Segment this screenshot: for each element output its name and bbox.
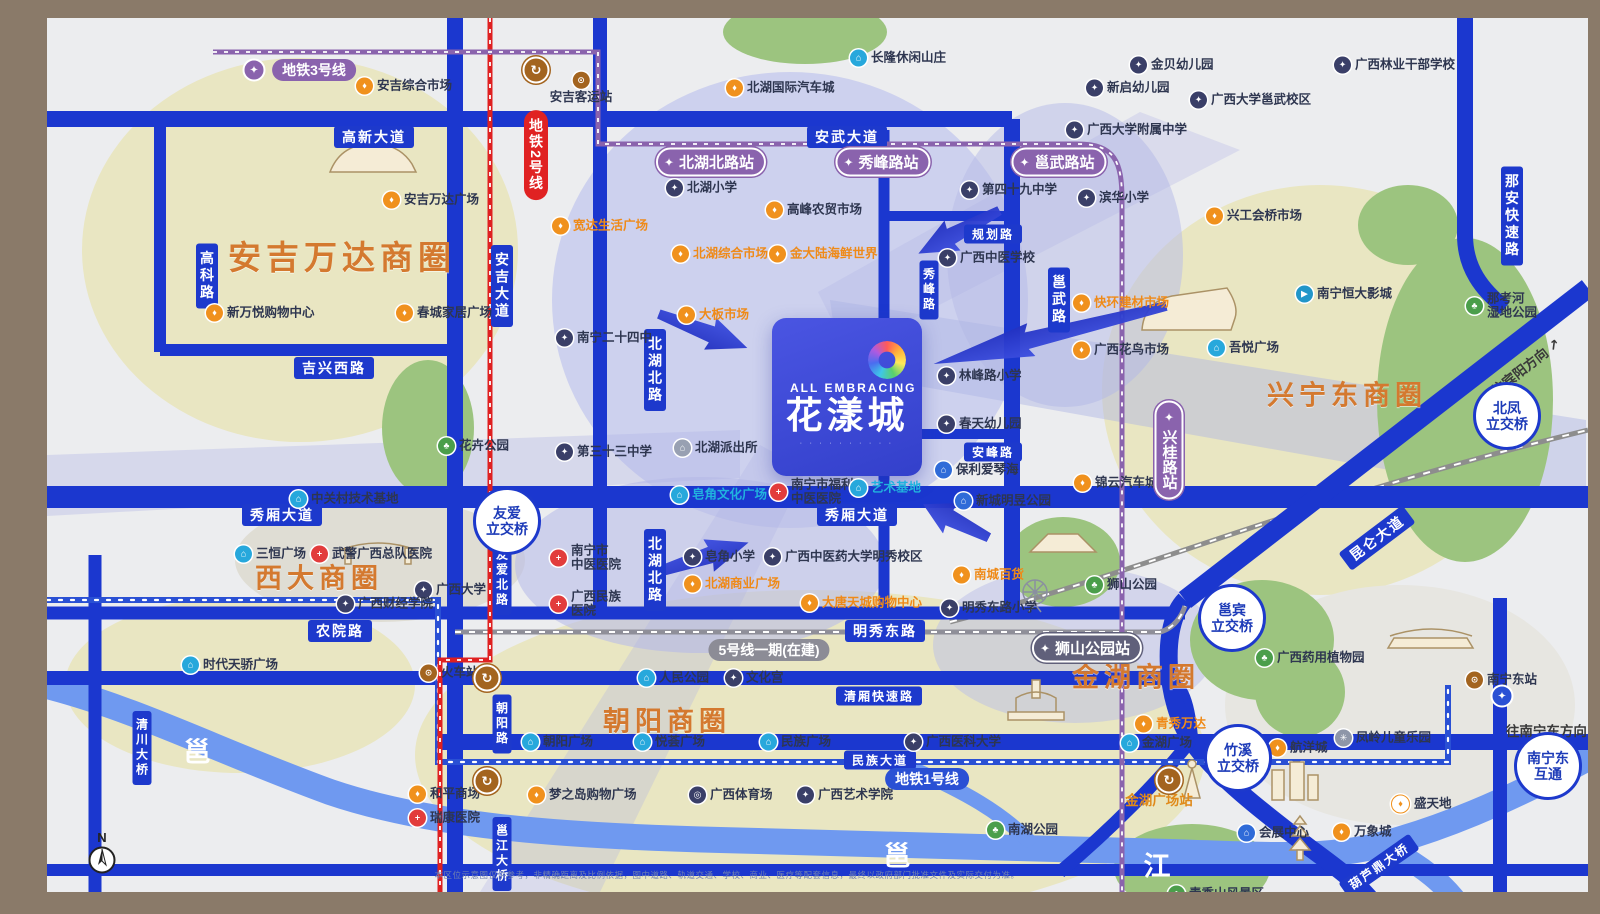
river-name-label: 邕 xyxy=(184,731,211,770)
market-icon: ♦ xyxy=(206,305,223,322)
train-station-icon: ⊙ xyxy=(572,72,589,89)
metro-logo-icon: ✦ xyxy=(843,155,853,169)
road-label: 安武大道 xyxy=(807,126,887,148)
road-label: 朝阳路 xyxy=(493,695,512,754)
hospital-cross-icon: + xyxy=(770,484,787,501)
interchange-name: 友爱立交桥 xyxy=(486,505,528,537)
business-circle-title: 安吉万达商圈 xyxy=(228,231,456,279)
interchange-name: 竹溪立交桥 xyxy=(1217,742,1259,774)
interchange-name: 北凤立交桥 xyxy=(1486,400,1528,432)
poi-museum: ⌂三恒广场 xyxy=(235,546,306,563)
school-icon: ✦ xyxy=(938,368,955,385)
poi-label: 皂角小学 xyxy=(705,550,755,564)
park-tree-icon: ♣ xyxy=(1168,886,1185,893)
poi-label: 广西财经学院 xyxy=(358,597,433,611)
poi-label: 安吉万达广场 xyxy=(404,193,479,207)
project-logo-card: ALL EMBRACING 花漾城 ∙ ∙ ∙ ∙ ∙ ∙ ∙ ∙ ∙ ∙ xyxy=(772,318,922,476)
poi-stadium: ◎广西体育场 xyxy=(689,787,773,804)
poi-label: 狮山公园 xyxy=(1107,578,1157,592)
museum-icon: ⌂ xyxy=(671,487,688,504)
poi-market: ♦快环建材市场 xyxy=(1073,295,1169,312)
school-icon: ✦ xyxy=(684,549,701,566)
poi-building: ⌂新城明昱公园 xyxy=(955,493,1051,510)
poi-label: 那考河湿地公园 xyxy=(1487,293,1537,320)
poi-label: 万象城 xyxy=(1354,825,1392,839)
poi-label: 民族广场 xyxy=(781,735,831,749)
poi-label: 广西中医药大学明秀校区 xyxy=(785,550,923,564)
poi-museum: ⌂民族广场 xyxy=(760,734,831,751)
poi-cinema: ▶南宁恒大影城 xyxy=(1296,286,1392,303)
poi-label: 春城家居广场 xyxy=(417,306,492,320)
metro-logo-icon: ✦ xyxy=(1019,155,1029,169)
poi-school: ✦广西大学附属中学 xyxy=(1066,122,1187,139)
poi-museum: ⌂长隆休闲山庄 xyxy=(850,50,946,67)
business-circle-title: 兴宁东商圈 xyxy=(1267,374,1427,413)
poi-hospital: +武警广西总队医院 xyxy=(311,546,432,563)
metro-line-pill: 5号线一期(在建) xyxy=(708,639,829,661)
market-icon: ♦ xyxy=(684,576,701,593)
metro-station-pill: ✦狮山公园站 xyxy=(1032,634,1142,663)
poi-school: ✦新启幼儿园 xyxy=(1086,80,1170,97)
school-icon: ✦ xyxy=(1334,57,1351,74)
poi-label: 安吉综合市场 xyxy=(377,79,452,93)
poi-market: ♦金大陆海鲜世界 xyxy=(769,246,878,263)
market-icon: ♦ xyxy=(552,218,569,235)
river-name-label: 邕 xyxy=(884,835,911,874)
poi-school: ✦广西医科大学 xyxy=(905,734,1001,751)
poi-school: ✦广西艺术学院 xyxy=(797,787,893,804)
road-label: 明秀东路 xyxy=(845,620,925,642)
market-icon: ♦ xyxy=(409,786,426,803)
road-label: 那安快速路 xyxy=(1501,167,1523,266)
road-label: 安吉大道 xyxy=(491,245,513,327)
poi-label: 金贝幼儿园 xyxy=(1151,58,1214,72)
museum-icon: ⌂ xyxy=(522,734,539,751)
poi-label: 春天幼儿园 xyxy=(959,417,1022,431)
poi-building: ⌂保利爱琴海 xyxy=(935,462,1019,479)
poi-market: ♦大唐天城购物中心 xyxy=(801,595,922,612)
station-name: 邕武路站 xyxy=(1035,152,1095,173)
poi-hospital: +南宁市福利中医医院 xyxy=(770,479,854,506)
poi-museum: ⌂朝阳广场 xyxy=(522,734,593,751)
poi-train: ⊙火车站 xyxy=(420,665,479,682)
poi-label: 朝阳广场 xyxy=(543,735,593,749)
poi-market: ♦航洋城 xyxy=(1269,740,1328,757)
hospital-cross-icon: + xyxy=(550,550,567,567)
poi-label: 北湖小学 xyxy=(687,181,737,195)
metro-transfer-icon: ↻ xyxy=(474,768,501,795)
park-tree-icon: ♣ xyxy=(1086,577,1103,594)
poi-market: ♦北湖综合市场 xyxy=(672,246,768,263)
poi-label: 艺术基地 xyxy=(871,481,921,495)
poi-hospital: +广西民族医院 xyxy=(550,591,621,618)
interchange-circle: 南宁东互通 xyxy=(1514,732,1582,800)
poi-label: 南宁二十四中 xyxy=(577,331,652,345)
poi-park: ♣青秀山风景区 xyxy=(1168,886,1264,893)
metro-station-pill: ✦邕武路站 xyxy=(1011,148,1106,177)
poi-school: ✦春天幼儿园 xyxy=(938,416,1022,433)
poi-school: ✦金贝幼儿园 xyxy=(1130,57,1214,74)
poi-school: ✦北湖小学 xyxy=(666,180,737,197)
school-icon: ✦ xyxy=(941,600,958,617)
market-icon: ♦ xyxy=(356,78,373,95)
station-name: 兴桂路站 xyxy=(1159,430,1180,490)
road-label: 北湖北路 xyxy=(644,529,666,611)
poi-label: 北湖国际汽车城 xyxy=(747,81,835,95)
road-label: 规划路 xyxy=(964,225,1022,244)
road-label: 邕武路 xyxy=(1048,268,1070,333)
market-icon: ♦ xyxy=(1073,295,1090,312)
poi-label: 悦荟广场 xyxy=(655,735,705,749)
poi-market: ♦安吉综合市场 xyxy=(356,78,452,95)
poi-museum: ⌂金湖广场 xyxy=(1121,735,1192,752)
poi-museum: ⌂时代天骄广场 xyxy=(182,657,278,674)
metro-station-pill: ✦兴桂路站 xyxy=(1155,401,1184,500)
poi-label: 广西大学附属中学 xyxy=(1087,123,1187,137)
poi-label: 花卉公园 xyxy=(459,439,509,453)
poi-label: 新万悦购物中心 xyxy=(227,306,315,320)
poi-label: 时代天骄广场 xyxy=(203,658,278,672)
market-icon: ♦ xyxy=(1206,208,1223,225)
poi-market: ♦新万悦购物中心 xyxy=(206,305,315,322)
school-icon: ✦ xyxy=(764,549,781,566)
poi-label: 长隆休闲山庄 xyxy=(871,51,946,65)
market-icon: ♦ xyxy=(1333,824,1350,841)
poi-market: ♦和平商场 xyxy=(409,786,480,803)
museum-icon: ⌂ xyxy=(850,480,867,497)
poi-park: ♣花卉公园 xyxy=(438,438,509,455)
poi-museum: ⌂吾悦广场 xyxy=(1208,340,1279,357)
market-icon: ♦ xyxy=(672,246,689,263)
poi-label: 保利爱琴海 xyxy=(956,463,1019,477)
poi-label: 和平商场 xyxy=(430,787,480,801)
market-icon: ♦ xyxy=(726,80,743,97)
train-station-icon: ⊙ xyxy=(1466,672,1483,689)
museum-icon: ⌂ xyxy=(850,50,867,67)
interchange-name: 南宁东互通 xyxy=(1527,750,1569,782)
poi-label: 凤岭儿童乐园 xyxy=(1356,731,1431,745)
market-icon: ♦ xyxy=(766,202,783,219)
poi-market: ♦宽达生活广场 xyxy=(552,218,648,235)
poi-school: ✦广西林业干部学校 xyxy=(1334,57,1455,74)
station-name: 北湖北路站 xyxy=(679,152,754,173)
road-label: 清厢快速路 xyxy=(836,687,922,706)
road-label: 高新大道 xyxy=(334,126,414,148)
poi-label: 南宁市中医医院 xyxy=(571,545,621,572)
poi-label: 新城明昱公园 xyxy=(976,494,1051,508)
poi-label: 滨华小学 xyxy=(1099,191,1149,205)
poi-market: ♦北湖国际汽车城 xyxy=(726,80,835,97)
interchange-circle: 友爱立交桥 xyxy=(473,487,541,555)
park-tree-icon: ♣ xyxy=(987,822,1004,839)
poi-market: ♦安吉万达广场 xyxy=(383,192,479,209)
market-icon: ♦ xyxy=(528,787,545,804)
poi-market: ♦青秀万达 xyxy=(1135,716,1206,733)
poi-market: ♦高峰农贸市场 xyxy=(766,202,862,219)
school-icon: ✦ xyxy=(1190,92,1207,109)
poi-label: 广西体育场 xyxy=(710,788,773,802)
compass-icon xyxy=(87,845,117,875)
building-icon: ⌂ xyxy=(935,462,952,479)
poi-label: 梦之岛购物广场 xyxy=(549,788,637,802)
poi-label: 广西中医学校 xyxy=(960,251,1035,265)
train-station-icon: ⊙ xyxy=(420,665,437,682)
museum-icon: ⌂ xyxy=(760,734,777,751)
school-icon: ✦ xyxy=(1066,122,1083,139)
market-icon: ♦ xyxy=(953,567,970,584)
metro-transfer-icon: ↻ xyxy=(1156,767,1183,794)
school-icon: ✦ xyxy=(337,596,354,613)
market-icon: ♦ xyxy=(801,595,818,612)
poi-label: 南湖公园 xyxy=(1008,823,1058,837)
metro-mark-icon: ✦ xyxy=(1491,685,1514,708)
poi-label: 广西艺术学院 xyxy=(818,788,893,802)
poi-label: 广西民族医院 xyxy=(571,591,621,618)
police-icon: ⌂ xyxy=(674,440,691,457)
metro-logo-icon: ✦ xyxy=(664,155,674,169)
metro-line-pill: 地铁2号线 xyxy=(524,110,548,200)
logo-tagline: ∙ ∙ ∙ ∙ ∙ ∙ ∙ ∙ ∙ ∙ xyxy=(800,440,894,447)
school-icon: ✦ xyxy=(939,250,956,267)
museum-icon: ⌂ xyxy=(290,491,307,508)
school-icon: ✦ xyxy=(961,182,978,199)
poi-label: 南宁市福利中医医院 xyxy=(791,479,854,506)
poi-school: ✦文化宫 xyxy=(725,670,784,687)
poi-school: ✦广西财经学院 xyxy=(337,596,433,613)
poi-label: 金大陆海鲜世界 xyxy=(790,247,878,261)
museum-icon: ⌂ xyxy=(235,546,252,563)
poi-label: 盛天地 xyxy=(1414,797,1452,811)
poi-police: ⌂北湖派出所 xyxy=(674,440,758,457)
poi-market: ♦万象城 xyxy=(1333,824,1392,841)
poi-market_o: ♦盛天地 xyxy=(1391,795,1452,814)
road-label: 葫芦鼎大桥 xyxy=(1338,834,1419,892)
poi-label: 航洋城 xyxy=(1290,741,1328,755)
poi-label: 北湖商业广场 xyxy=(705,577,780,591)
market-icon: ♦ xyxy=(769,246,786,263)
school-icon: ✦ xyxy=(1086,80,1103,97)
poi-train: ⊙安吉客运站 xyxy=(550,72,613,105)
museum-icon: ⌂ xyxy=(1208,340,1225,357)
poi-label: 文化宫 xyxy=(746,671,784,685)
station-name: 秀峰路站 xyxy=(859,152,919,173)
poi-hospital: +瑞康医院 xyxy=(409,810,480,827)
museum-icon: ⌂ xyxy=(1121,735,1138,752)
museum-icon: ⌂ xyxy=(182,657,199,674)
school-icon: ✦ xyxy=(725,670,742,687)
poi-school: ✦明秀东路小学 xyxy=(941,600,1037,617)
school-icon: ✦ xyxy=(1078,190,1095,207)
poi-label: 明秀东路小学 xyxy=(962,601,1037,615)
poi-label: 宽达生活广场 xyxy=(573,219,648,233)
park-tree-icon: ♣ xyxy=(1466,298,1483,315)
metro-station-pill: ✦秀峰路站 xyxy=(835,148,930,177)
museum-icon: ⌂ xyxy=(634,734,651,751)
map-area: ♦安吉综合市场⊙安吉客运站♦北湖国际汽车城⌂长隆休闲山庄✦金贝幼儿园✦新启幼儿园… xyxy=(47,18,1588,892)
poi-market: ♦北湖商业广场 xyxy=(684,576,780,593)
station-name: 狮山公园站 xyxy=(1055,638,1130,659)
school-icon: ✦ xyxy=(556,444,573,461)
hospital-cross-icon: + xyxy=(311,546,328,563)
road-label: 农院路 xyxy=(308,620,372,642)
poi-school: ✦林峰路小学 xyxy=(938,368,1022,385)
poi-label: 中关村技术基地 xyxy=(311,492,399,506)
poi-building: ⌂会展中心 xyxy=(1238,825,1309,842)
project-name: 花漾城 xyxy=(786,395,909,438)
poi-market: ♦大板市场 xyxy=(678,307,749,324)
poi-label: 高峰农贸市场 xyxy=(787,203,862,217)
road-label: 民族大道 xyxy=(844,751,916,770)
poi-label: 皂角文化广场 xyxy=(692,488,767,502)
metro-line-pill: 地铁3号线 xyxy=(272,59,356,81)
poi-school: ✦广西中医药大学明秀校区 xyxy=(764,549,923,566)
poi-museum: ⌂人民公园 xyxy=(638,670,709,687)
interchange-circle: 竹溪立交桥 xyxy=(1204,724,1272,792)
poi-label: 大板市场 xyxy=(699,308,749,322)
map-canvas: ♦安吉综合市场⊙安吉客运站♦北湖国际汽车城⌂长隆休闲山庄✦金贝幼儿园✦新启幼儿园… xyxy=(0,0,1600,914)
poi-museum: ⌂中关村技术基地 xyxy=(290,491,399,508)
metro-station-pill: ✦北湖北路站 xyxy=(656,148,766,177)
poi-label: 吾悦广场 xyxy=(1229,341,1279,355)
market-outline-icon: ♦ xyxy=(1391,795,1410,814)
building-icon: ⌂ xyxy=(955,493,972,510)
poi-park: ♣狮山公园 xyxy=(1086,577,1157,594)
market-icon: ♦ xyxy=(1074,475,1091,492)
pinwheel-logo-icon xyxy=(868,341,906,379)
poi-market: ♦广西花鸟市场 xyxy=(1073,342,1169,359)
poi-label: 广西大学邕武校区 xyxy=(1211,93,1311,107)
market-icon: ♦ xyxy=(678,307,695,324)
poi-label: 青秀山风景区 xyxy=(1189,887,1264,892)
poi-hospital: +南宁市中医医院 xyxy=(550,545,621,572)
poi-label: 广西药用植物园 xyxy=(1277,651,1365,665)
poi-school: ✦南宁二十四中 xyxy=(556,330,652,347)
poi-label: 会展中心 xyxy=(1259,826,1309,840)
school-icon: ✦ xyxy=(666,180,683,197)
poi-label: 新启幼儿园 xyxy=(1107,81,1170,95)
station-name-text: 金湖广场站 xyxy=(1125,789,1193,809)
museum-icon: ⌂ xyxy=(638,670,655,687)
metro-transfer-icon: ↻ xyxy=(474,665,501,692)
road-label: 昆仑大道 xyxy=(1338,505,1415,571)
poi-label: 林峰路小学 xyxy=(959,369,1022,383)
park-tree-icon: ♣ xyxy=(1256,650,1273,667)
interchange-name: 邕宾立交桥 xyxy=(1211,602,1253,634)
poi-label: 广西林业干部学校 xyxy=(1355,58,1455,72)
stadium-icon: ◎ xyxy=(689,787,706,804)
compass: N xyxy=(85,830,119,880)
metro-line-pill: 地铁1号线 xyxy=(885,768,969,790)
poi-label: 广西花鸟市场 xyxy=(1094,343,1169,357)
poi-museum: ⌂艺术基地 xyxy=(850,480,921,497)
poi-label: 第四十九中学 xyxy=(982,183,1057,197)
poi-label: 南宁东站 xyxy=(1487,673,1537,687)
poi-market: ♦春城家居广场 xyxy=(396,305,492,322)
interchange-circle: 邕宾立交桥 xyxy=(1198,584,1266,652)
poi-label: 青秀万达 xyxy=(1156,717,1206,731)
poi-market: ♦梦之岛购物广场 xyxy=(528,787,637,804)
school-icon: ✦ xyxy=(1130,57,1147,74)
poi-school: ✦广西大学邕武校区 xyxy=(1190,92,1311,109)
poi-label: 瑞康医院 xyxy=(430,811,480,825)
hospital-cross-icon: + xyxy=(550,596,567,613)
market-icon: ♦ xyxy=(383,192,400,209)
poi-school: ✦第三十三中学 xyxy=(556,444,652,461)
metro-logo-icon: ✦ xyxy=(1040,641,1050,655)
ferris-wheel-icon: ✳ xyxy=(1335,730,1352,747)
poi-park: ♣广西药用植物园 xyxy=(1256,650,1365,667)
poi-school: ✦广西中医学校 xyxy=(939,250,1035,267)
school-icon: ✦ xyxy=(905,734,922,751)
poi-park: ♣南湖公园 xyxy=(987,822,1058,839)
poi-label: 安吉客运站 xyxy=(550,91,613,105)
poi-label: 南宁恒大影城 xyxy=(1317,287,1392,301)
map-disclaimer: 本区位示意图仅供参考，非精确距离及比例依据，图中道路、轨道交通、学校、商业、医疗… xyxy=(297,869,1157,881)
poi-museum: ⌂悦荟广场 xyxy=(634,734,705,751)
poi-label: 锦云汽车城 xyxy=(1095,476,1158,490)
poi-label: 快环建材市场 xyxy=(1094,296,1169,310)
poi-museum: ⌂皂角文化广场 xyxy=(671,487,767,504)
metro-transfer-icon: ↻ xyxy=(523,57,550,84)
poi-label: 金湖广场 xyxy=(1142,736,1192,750)
poi-label: 北湖派出所 xyxy=(695,441,758,455)
road-label: 吉兴西路 xyxy=(294,357,374,379)
school-icon: ✦ xyxy=(797,787,814,804)
poi-label: 人民公园 xyxy=(659,671,709,685)
logo-english-text: ALL EMBRACING xyxy=(790,381,916,395)
school-icon: ✦ xyxy=(938,416,955,433)
poi-label: 第三十三中学 xyxy=(577,445,652,459)
road-label: 秀厢大道 xyxy=(817,504,897,526)
poi-school: ✦第四十九中学 xyxy=(961,182,1057,199)
poi-label: 大唐天城购物中心 xyxy=(822,596,922,610)
poi-market: ♦南城百货 xyxy=(953,567,1024,584)
cinema-icon: ▶ xyxy=(1296,286,1313,303)
poi-school: ✦皂角小学 xyxy=(684,549,755,566)
road-label: 秀峰路 xyxy=(920,261,939,320)
market-icon: ♦ xyxy=(1135,716,1152,733)
metro-logo-icon: ✦ xyxy=(1162,411,1176,425)
interchange-circle: 北凤立交桥 xyxy=(1473,382,1541,450)
poi-park: ♣那考河湿地公园 xyxy=(1466,293,1537,320)
metro-mark-icon: ✦ xyxy=(243,59,266,82)
park-tree-icon: ♣ xyxy=(438,438,455,455)
road-label: 安峰路 xyxy=(964,443,1022,462)
poi-label: 广西大学 xyxy=(436,583,486,597)
school-icon: ✦ xyxy=(556,330,573,347)
building-icon: ⌂ xyxy=(1238,825,1255,842)
market-icon: ♦ xyxy=(396,305,413,322)
poi-school: ✦滨华小学 xyxy=(1078,190,1149,207)
poi-label: 兴工会桥市场 xyxy=(1227,209,1302,223)
poi-label: 三恒广场 xyxy=(256,547,306,561)
road-label: 清川大桥 xyxy=(133,711,152,785)
poi-label: 北湖综合市场 xyxy=(693,247,768,261)
road-label: 高科路 xyxy=(196,244,218,309)
poi-label: 广西医科大学 xyxy=(926,735,1001,749)
poi-label: 武警广西总队医院 xyxy=(332,547,432,561)
poi-market: ♦锦云汽车城 xyxy=(1074,475,1158,492)
market-icon: ♦ xyxy=(1073,342,1090,359)
poi-market: ♦兴工会桥市场 xyxy=(1206,208,1302,225)
compass-north-label: N xyxy=(85,830,119,845)
hospital-cross-icon: + xyxy=(409,810,426,827)
poi-label: 南城百货 xyxy=(974,568,1024,582)
poi-attraction: ✳凤岭儿童乐园 xyxy=(1335,730,1431,747)
